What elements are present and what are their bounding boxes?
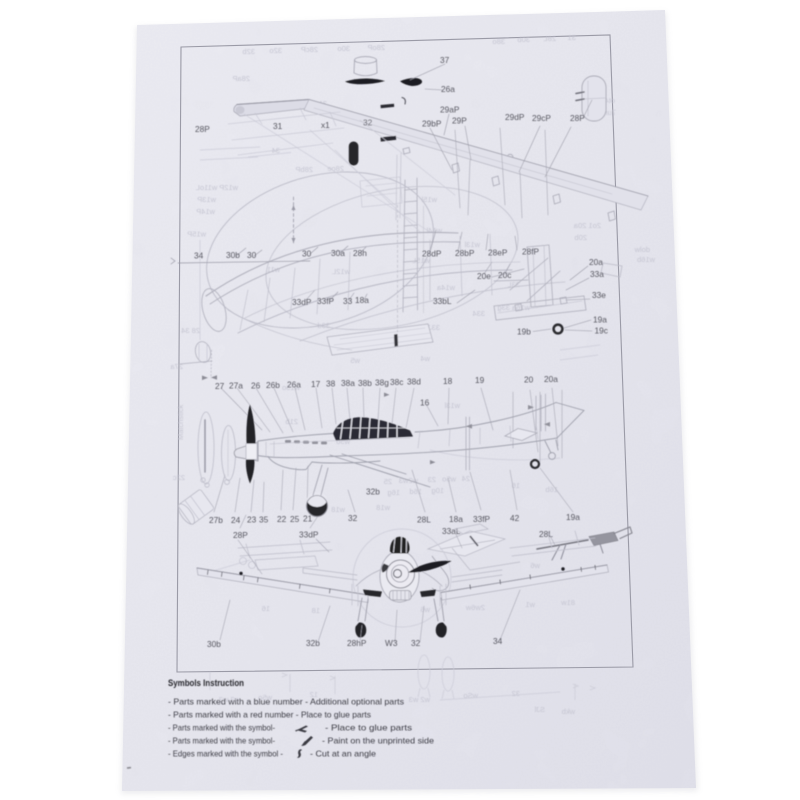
svg-text:w12P w11oL: w12P w11oL [196, 183, 239, 192]
svg-text:33bL: 33bL [433, 296, 452, 306]
svg-text:x1: x1 [321, 120, 330, 130]
svg-text:42: 42 [510, 513, 520, 523]
svg-text:23: 23 [428, 475, 436, 484]
svg-text:18a: 18a [449, 514, 463, 524]
svg-text:30: 30 [247, 250, 257, 260]
svg-text:25: 25 [384, 477, 392, 486]
svg-text:33a: 33a [590, 269, 604, 279]
svg-text:16d: 16d [409, 487, 422, 496]
svg-text:32b: 32b [366, 487, 380, 497]
svg-text:29cP: 29cP [532, 113, 551, 123]
svg-text:38o: 38o [492, 37, 505, 46]
svg-text:26: 26 [251, 380, 261, 390]
svg-text:w12L: w12L [332, 267, 351, 276]
svg-text:- Parts marked with a blue num: - Parts marked with a blue number - Addi… [168, 698, 404, 707]
svg-text:28P: 28P [195, 124, 210, 134]
svg-text:28aP: 28aP [232, 74, 250, 83]
svg-text:23: 23 [247, 515, 257, 525]
svg-text:dolw: dolw [634, 245, 650, 254]
svg-text:19a: 19a [593, 315, 607, 325]
svg-text:22c: 22c [173, 473, 185, 482]
svg-text:31: 31 [273, 121, 283, 131]
svg-text:38g: 38g [375, 377, 389, 387]
svg-text:28cP: 28cP [301, 45, 318, 54]
svg-text:19: 19 [475, 375, 485, 385]
svg-text:33fP: 33fP [317, 296, 335, 306]
svg-text:w14l: w14l [426, 226, 443, 235]
svg-text:w13P: w13P [197, 195, 217, 204]
svg-text:32b: 32b [242, 47, 255, 56]
svg-text:30b: 30b [517, 35, 530, 44]
svg-text:19a: 19a [566, 512, 580, 522]
svg-text:17: 17 [311, 379, 321, 389]
svg-text:26a: 26a [441, 84, 455, 94]
svg-text:19b: 19b [517, 327, 531, 337]
svg-text:Symbols Instruction: Symbols Instruction [168, 678, 244, 688]
svg-text:28bP: 28bP [295, 165, 313, 174]
svg-text:28bP: 28bP [455, 248, 475, 258]
svg-text:18: 18 [443, 376, 453, 386]
svg-text:29P: 29P [452, 116, 467, 126]
svg-text:28oP: 28oP [367, 43, 385, 52]
svg-text:32o: 32o [269, 46, 282, 55]
svg-text:20a: 20a [544, 374, 558, 384]
svg-text:32: 32 [363, 118, 373, 128]
svg-text:18a: 18a [355, 295, 369, 305]
svg-text:- Parts marked with the symbol: - Parts marked with the symbol- [168, 737, 275, 746]
svg-text:30b: 30b [226, 250, 240, 260]
svg-text:18: 18 [312, 606, 320, 615]
svg-text:28 34: 28 34 [181, 326, 200, 335]
svg-text:32b: 32b [306, 638, 320, 648]
svg-text:- Place to glue parts: - Place to glue parts [325, 724, 412, 733]
svg-text:22: 22 [277, 514, 287, 524]
svg-text:20a: 20a [589, 257, 603, 267]
svg-text:Matchstick: Matchstick [176, 404, 185, 440]
svg-text:33: 33 [343, 296, 353, 306]
svg-text:w18: w18 [331, 505, 346, 514]
svg-text:- Cut at an angle: - Cut at an angle [310, 750, 376, 759]
svg-text:28h: 28h [353, 248, 367, 258]
svg-text:28L: 28L [543, 34, 556, 43]
svg-text:20c: 20c [498, 270, 511, 280]
svg-text:24: 24 [231, 515, 241, 525]
svg-text:31: 31 [568, 33, 576, 42]
svg-text:w2 w3: w2 w3 [409, 695, 431, 704]
svg-text:wSo: wSo [463, 691, 479, 700]
svg-text:30a: 30a [331, 248, 345, 258]
svg-text:21: 21 [303, 514, 313, 524]
svg-text:27a: 27a [229, 381, 243, 391]
svg-text:10g: 10g [431, 486, 444, 495]
svg-text:- Paint on the unprinted side: - Paint on the unprinted side [322, 737, 434, 746]
svg-text:26b: 26b [266, 380, 280, 390]
svg-text:- Parts marked with a red numb: - Parts marked with a red number - Place… [168, 711, 371, 720]
svg-text:28eP: 28eP [488, 248, 508, 258]
svg-text:28P: 28P [570, 113, 585, 123]
svg-text:20b: 20b [574, 233, 587, 242]
svg-text:27a: 27a [170, 362, 183, 371]
svg-text:38: 38 [326, 379, 336, 389]
svg-text:34: 34 [194, 251, 204, 261]
svg-text:32: 32 [348, 513, 358, 523]
svg-text:w4: w4 [420, 354, 431, 363]
svg-text:38c: 38c [390, 377, 403, 387]
svg-text:w1: w1 [525, 600, 536, 609]
svg-text:w14a: w14a [436, 283, 456, 292]
svg-text:w6: w6 [530, 561, 541, 570]
svg-text:34: 34 [493, 636, 503, 646]
svg-text:30o: 30o [337, 44, 350, 53]
svg-text:w16b: w16b [637, 255, 656, 264]
svg-text:33fP: 33fP [473, 514, 491, 524]
svg-text:w13l: w13l [444, 401, 461, 410]
svg-text:- Parts marked with the symbol: - Parts marked with the symbol- [168, 724, 275, 733]
svg-text:26a: 26a [287, 380, 301, 390]
svg-text:w6: w6 [420, 605, 431, 614]
svg-text:35: 35 [259, 514, 269, 524]
svg-text:33dP: 33dP [299, 530, 319, 540]
svg-text:28hP: 28hP [347, 638, 367, 648]
svg-text:33e: 33e [592, 290, 606, 300]
svg-text:29aP: 29aP [440, 105, 460, 115]
svg-text:32: 32 [512, 689, 520, 698]
svg-text:19c: 19c [595, 326, 608, 336]
svg-text:16g: 16g [387, 488, 400, 497]
svg-text:2o1 20a: 2o1 20a [573, 221, 601, 230]
svg-text:w15P: w15P [187, 230, 207, 239]
svg-text:38d: 38d [407, 377, 421, 387]
svg-text:27b: 27b [209, 515, 223, 525]
svg-text:2w6w: 2w6w [465, 603, 485, 612]
svg-text:w18: w18 [376, 503, 391, 512]
svg-text:20: 20 [524, 374, 534, 384]
svg-text:28fP: 28fP [522, 247, 540, 257]
svg-text:- Edges marked with the symbol: - Edges marked with the symbol - [168, 750, 283, 759]
svg-text:16: 16 [262, 604, 270, 613]
svg-text:30b: 30b [207, 639, 221, 649]
svg-text:20e: 20e [477, 271, 491, 281]
svg-text:33dP: 33dP [292, 297, 312, 307]
svg-text:30: 30 [302, 249, 312, 259]
svg-text:38a: 38a [341, 378, 355, 388]
svg-text:w5o: w5o [442, 475, 457, 484]
svg-text:25: 25 [290, 514, 300, 524]
svg-text:W3: W3 [385, 638, 398, 648]
svg-text:w5: w5 [350, 356, 361, 365]
svg-text:334: 334 [472, 309, 485, 318]
svg-text:27: 27 [215, 381, 225, 391]
svg-text:wkb: wkb [562, 707, 576, 716]
svg-text:24: 24 [462, 474, 470, 483]
svg-text:SJl: SJl [534, 705, 545, 714]
svg-text:16: 16 [420, 398, 430, 408]
svg-text:29bP: 29bP [422, 119, 442, 129]
svg-text:37: 37 [440, 55, 450, 65]
svg-text:81w: 81w [561, 598, 575, 607]
svg-text:28P: 28P [233, 530, 248, 540]
svg-text:28dP: 28dP [422, 249, 442, 259]
svg-text:38b: 38b [358, 378, 372, 388]
svg-text:32: 32 [411, 638, 421, 648]
svg-text:w14P: w14P [196, 207, 216, 216]
svg-text:29dP: 29dP [505, 112, 525, 122]
svg-text:28L: 28L [417, 515, 431, 525]
